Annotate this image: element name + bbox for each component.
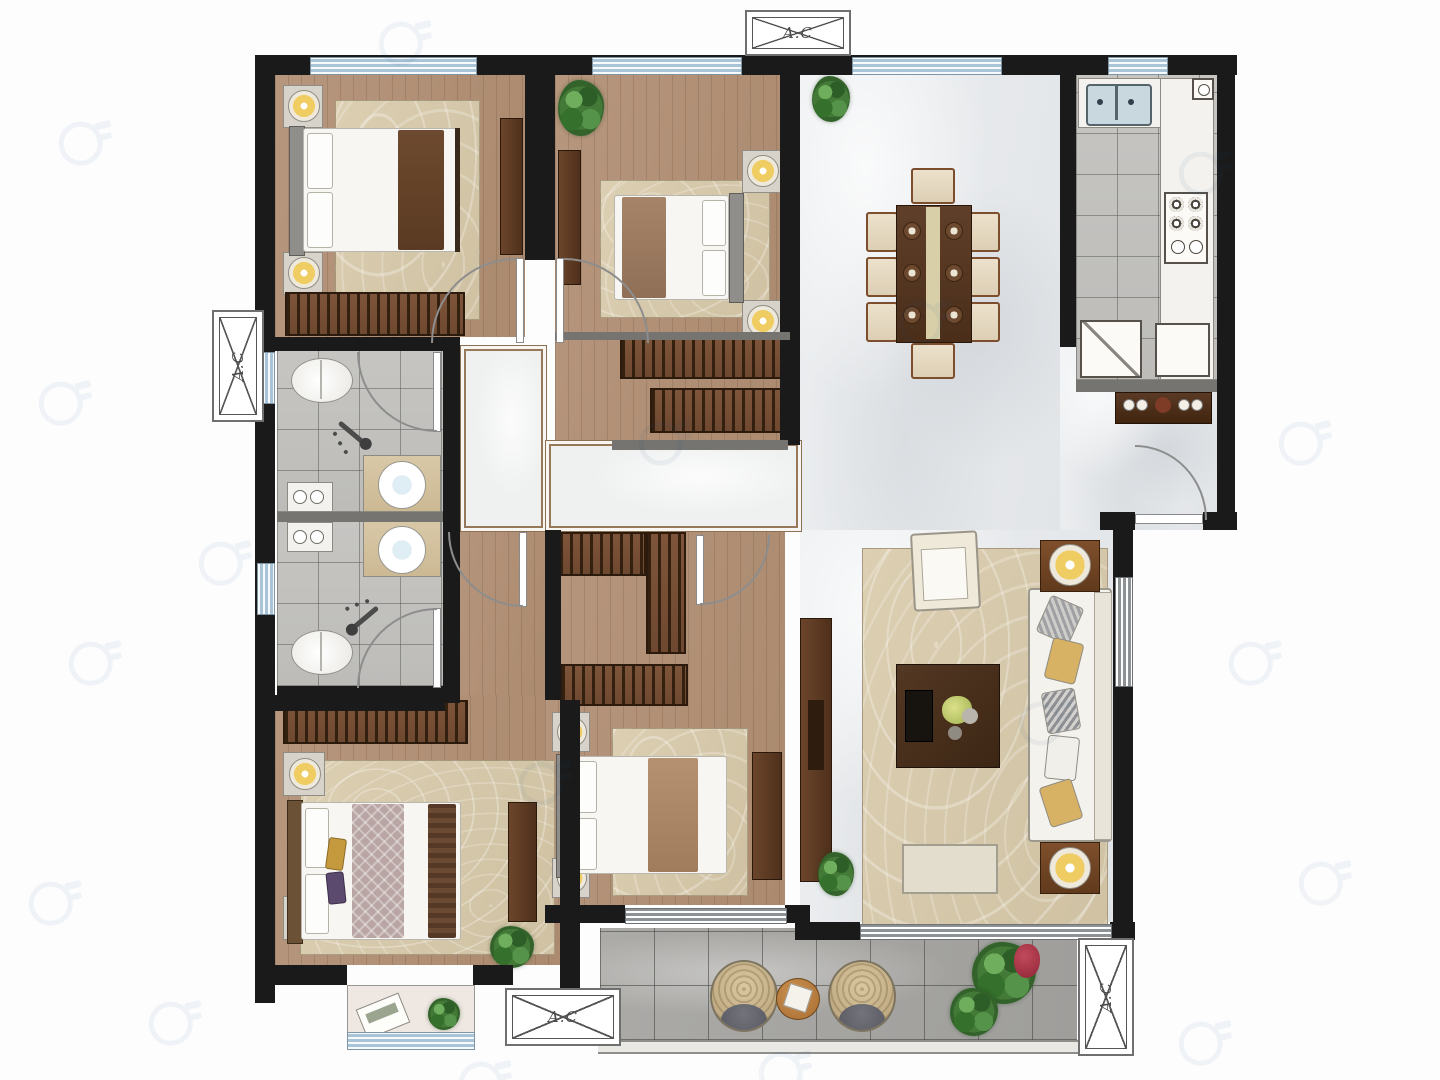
door-leaf — [556, 258, 564, 343]
appliance-line — [1082, 322, 1140, 376]
floor-lamp-icon — [1049, 847, 1091, 889]
bay-window — [347, 1032, 475, 1050]
dining-chair — [968, 302, 1000, 342]
egg-chair — [828, 960, 896, 1032]
faucet-dot — [310, 530, 324, 544]
decor-ball — [962, 708, 978, 724]
faucet-dot — [293, 490, 307, 504]
egg-chair — [710, 960, 778, 1032]
watermark-logo-icon — [1174, 1014, 1242, 1080]
toilet-seam — [320, 360, 322, 399]
bed-pillow — [702, 200, 726, 246]
toilet — [291, 358, 353, 403]
wall — [1100, 512, 1135, 530]
place-setting — [945, 306, 963, 324]
sofa-pillow — [1044, 734, 1080, 781]
wall — [277, 512, 443, 522]
place-setting — [945, 222, 963, 240]
watermark-logo-icon — [1224, 634, 1292, 702]
dining-chair — [968, 212, 1000, 252]
window — [1108, 57, 1168, 75]
place-setting — [903, 264, 921, 282]
console-decor — [1191, 399, 1203, 411]
bed-pillow — [305, 874, 329, 934]
dining-chair — [866, 257, 898, 297]
wardrobe — [646, 532, 686, 654]
dresser — [500, 118, 523, 255]
wall — [1203, 512, 1237, 530]
window — [310, 57, 477, 75]
bed-duvet — [622, 197, 666, 298]
floor-plan: A.C A.C A.C A.C — [0, 0, 1440, 1080]
kitchen-sink — [1086, 84, 1152, 126]
ac-unit-box: A.C — [212, 310, 264, 422]
wardrobe — [650, 388, 788, 433]
watermark-logo-icon — [194, 534, 262, 602]
bed-duvet — [352, 804, 404, 938]
faucet-dot — [293, 530, 307, 544]
hallway-floor-horizontal — [545, 440, 802, 532]
dining-chair — [968, 257, 1000, 297]
bed-pillow — [307, 133, 333, 189]
dining-chair — [866, 212, 898, 252]
sink-basin — [378, 461, 426, 509]
bed-footboard — [455, 128, 460, 252]
toilet-seam — [320, 632, 322, 671]
bed-duvet — [398, 130, 444, 250]
toilet — [291, 630, 353, 675]
sliding-door — [860, 924, 1112, 940]
wall — [545, 530, 561, 700]
window — [1115, 577, 1133, 687]
faucet-dot — [310, 490, 324, 504]
ac-label: A.C — [184, 342, 292, 390]
wall — [612, 440, 788, 450]
sink-drain — [1097, 99, 1103, 105]
wall — [255, 695, 445, 711]
wall — [525, 75, 555, 260]
console-decor — [1123, 399, 1135, 411]
watermark-logo-icon — [64, 634, 132, 702]
watermark-logo-icon — [34, 374, 102, 442]
watermark-logo-icon — [24, 874, 92, 942]
dresser — [508, 802, 537, 922]
gas-meter-dial — [1198, 84, 1210, 96]
stove-burner-icon — [1188, 197, 1203, 212]
place-setting — [903, 306, 921, 324]
ottoman-bench — [902, 844, 998, 894]
table-lamp-icon — [747, 155, 779, 187]
dresser — [752, 752, 782, 880]
stove-burner-icon — [1169, 197, 1184, 212]
balcony-railing — [598, 1040, 1078, 1054]
decor-ball — [948, 726, 962, 740]
stove-knob — [1171, 240, 1185, 254]
coffee-table-tray — [905, 690, 933, 742]
tv-decor — [808, 700, 824, 770]
table-lamp-icon — [289, 758, 321, 790]
wall — [780, 75, 800, 445]
watermark-logo-icon — [1294, 854, 1362, 922]
sofa-pillow — [1041, 687, 1082, 734]
ac-label: A.C — [1049, 971, 1163, 1023]
fridge — [1155, 323, 1210, 377]
wall — [1060, 75, 1076, 347]
bed-duvet — [648, 758, 698, 872]
hallway-floor-vertical — [460, 345, 547, 532]
ac-unit-box: A.C — [1078, 938, 1134, 1056]
ac-unit-box: A.C — [505, 988, 621, 1046]
wardrobe — [620, 337, 788, 379]
window — [625, 908, 787, 924]
console-decor — [1136, 399, 1148, 411]
bed-pillow — [702, 250, 726, 296]
watermark-logo-icon — [1274, 414, 1342, 482]
wall — [1076, 380, 1217, 392]
stove-burner-icon — [1169, 216, 1184, 231]
stove-burner-icon — [1188, 216, 1203, 231]
sink-basin-divider — [1115, 86, 1118, 120]
wardrobe — [558, 532, 646, 576]
dining-chair — [911, 168, 955, 204]
window — [852, 57, 1002, 75]
armchair-seat — [921, 547, 969, 601]
table-runner — [926, 207, 940, 339]
wall — [473, 965, 513, 985]
wall — [785, 905, 810, 923]
accent-pillow — [325, 871, 346, 905]
wall — [255, 965, 347, 985]
wall — [443, 345, 460, 703]
ac-unit-box: A.C — [745, 10, 851, 56]
window — [592, 57, 742, 75]
table-lamp-icon — [288, 257, 320, 289]
console-decor — [1178, 399, 1190, 411]
floor-lamp-icon — [1049, 544, 1091, 586]
watermark-logo-icon — [144, 994, 212, 1062]
wall — [1217, 55, 1235, 528]
ac-label: A.C — [507, 990, 619, 1044]
console-decor — [1155, 397, 1171, 413]
window — [257, 563, 275, 615]
watermark-logo-icon — [54, 114, 122, 182]
sink-drain — [1128, 99, 1134, 105]
dining-chair — [911, 343, 955, 379]
bed-runner — [428, 804, 456, 938]
door-leaf — [516, 258, 524, 343]
bed-pillow — [307, 192, 333, 248]
stove-knob — [1189, 240, 1203, 254]
wall — [560, 700, 580, 990]
ac-label: A.C — [747, 12, 849, 54]
watermark-logo-icon — [454, 1054, 522, 1080]
table-lamp-icon — [288, 90, 320, 122]
wall — [255, 55, 275, 1003]
dining-chair — [866, 302, 898, 342]
sink-basin — [378, 526, 426, 574]
place-setting — [903, 222, 921, 240]
sofa-back — [1094, 592, 1112, 840]
bed-headboard — [729, 193, 744, 303]
wall — [795, 922, 860, 940]
wall — [545, 905, 625, 923]
place-setting — [945, 264, 963, 282]
